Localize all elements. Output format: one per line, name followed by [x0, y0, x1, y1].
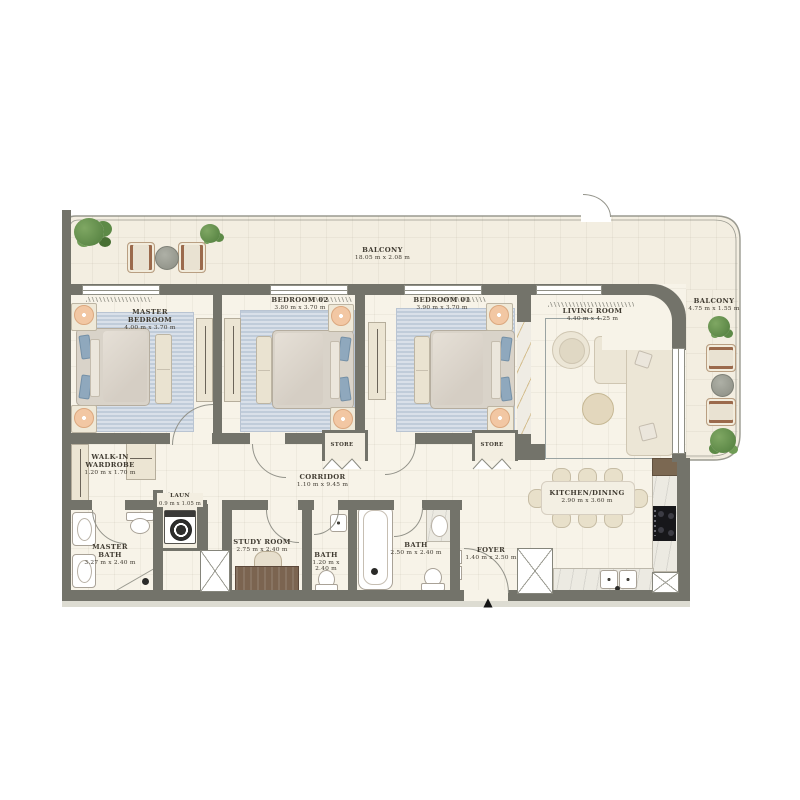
coffee-table — [582, 393, 614, 425]
dining-chair — [552, 513, 571, 528]
cooktop — [653, 506, 676, 541]
wall-corridor-bottom — [125, 500, 155, 510]
label-study-room: STUDY ROOM 2.75 m x 2.40 m — [228, 538, 296, 553]
bath-main-vanity — [426, 508, 452, 542]
shaft-box — [517, 548, 553, 594]
bedroom02-lamp — [333, 409, 353, 429]
store-2-label: STORE — [475, 442, 509, 448]
label-living-room: LIVING ROOM 4.40 m x 4.25 m — [545, 307, 640, 322]
label-bedroom01: BEDROOM 01 3.90 m x 3.70 m — [392, 296, 492, 311]
bedroom01-bench — [414, 336, 430, 404]
wall-bedrooms-bottom — [212, 433, 250, 444]
balcony-armchair — [706, 398, 736, 426]
wall-bedrooms-bottom — [285, 433, 322, 444]
masterbath-toilet-bowl — [130, 518, 150, 534]
label-bath-small: BATH 1.20 m x 2.40 m — [305, 551, 347, 572]
wall-bottom — [62, 590, 690, 601]
bedroom01-lamp — [489, 305, 509, 325]
wall-corridor-bottom — [62, 500, 92, 510]
wall-bath-foyer — [450, 500, 460, 590]
store-2: STORE — [472, 430, 518, 461]
window-living-balcony — [672, 348, 685, 454]
wall-feature-stub — [517, 444, 545, 460]
kitchen-sink — [619, 570, 637, 589]
study-desk — [235, 566, 299, 593]
label-foyer: FOYER 1.40 m x 2.50 m — [462, 546, 520, 561]
shaft-box — [652, 572, 679, 593]
wall-bedrooms-bottom — [71, 433, 170, 444]
label-kitchen-dining: KITCHEN/DINING 2.90 m x 3.60 m — [542, 489, 632, 504]
bedroom02-bench — [256, 336, 272, 404]
master-bed — [76, 328, 150, 406]
label-balcony-right: BALCONY 4.75 m x 1.55 m — [686, 297, 742, 312]
ground-shadow — [62, 601, 690, 607]
balcony-armchair — [178, 242, 206, 273]
window-bedroom01 — [404, 285, 482, 295]
shaft-box — [200, 550, 230, 592]
wall-bed02-bed01 — [355, 295, 365, 444]
store-1-label: STORE — [325, 442, 359, 448]
wall-master-bed02 — [213, 295, 222, 444]
label-balcony-top: BALCONY 18.05 m x 2.08 m — [330, 246, 435, 261]
balcony-armchair — [706, 344, 736, 372]
balcony-plant — [200, 224, 220, 243]
entry-arrow: ▲ — [478, 595, 498, 609]
wall-baths — [348, 500, 357, 590]
bedroom01-lamp — [490, 408, 510, 428]
window-living-top — [536, 285, 602, 295]
balcony-plant — [74, 218, 104, 246]
wall-corridor-bottom — [338, 500, 394, 510]
bedroom02-wardrobe — [224, 318, 241, 402]
label-walk-in-wardrobe: WALK-IN WARDROBE 1.20 m x 1.70 m — [75, 453, 145, 476]
label-bedroom02: BEDROOM 02 3.80 m x 3.70 m — [250, 296, 350, 311]
dining-chair — [604, 513, 623, 528]
balcony-plant — [710, 428, 736, 453]
window-bedroom02 — [270, 285, 348, 295]
bedroom01-wardrobe — [368, 322, 386, 400]
balcony-plant — [708, 316, 730, 337]
dining-chair — [633, 489, 648, 508]
balcony-table — [711, 374, 734, 397]
wall-left — [62, 210, 71, 601]
master-lamp — [74, 305, 94, 325]
floor-plan: STORE STORE — [0, 0, 800, 800]
bedroom01-bed — [430, 330, 515, 409]
bifold-store-1 — [322, 458, 362, 470]
wall-bedrooms-bottom — [415, 433, 472, 444]
bathtub — [358, 505, 393, 590]
label-master-bedroom: MASTER BEDROOM 4.00 m x 3.70 m — [100, 308, 200, 331]
label-bath-main: BATH 2.50 m x 2.40 m — [390, 541, 442, 556]
wall-study-bath — [302, 500, 312, 590]
label-laundry: LAUN 0.9 m x 1.05 m — [157, 493, 203, 507]
curtain-zigzag — [86, 297, 152, 302]
label-corridor: CORRIDOR 1.10 m x 9.45 m — [280, 473, 365, 488]
washing-machine — [164, 510, 196, 544]
window-master — [82, 285, 160, 295]
store-1: STORE — [322, 430, 368, 461]
balcony-armchair — [127, 242, 155, 273]
feature-wall-marble — [517, 322, 531, 434]
dining-chair — [578, 513, 597, 528]
bifold-store-2 — [472, 458, 512, 470]
master-bench — [155, 334, 172, 404]
bedroom02-bed — [272, 330, 354, 409]
wall-laundry-right — [197, 500, 207, 550]
balcony-table — [155, 246, 179, 270]
living-armchair-seat — [559, 338, 585, 364]
master-lamp — [74, 408, 94, 428]
shower-head — [142, 578, 149, 585]
label-master-bath: MASTER BATH 3.27 m x 2.40 m — [80, 543, 140, 566]
